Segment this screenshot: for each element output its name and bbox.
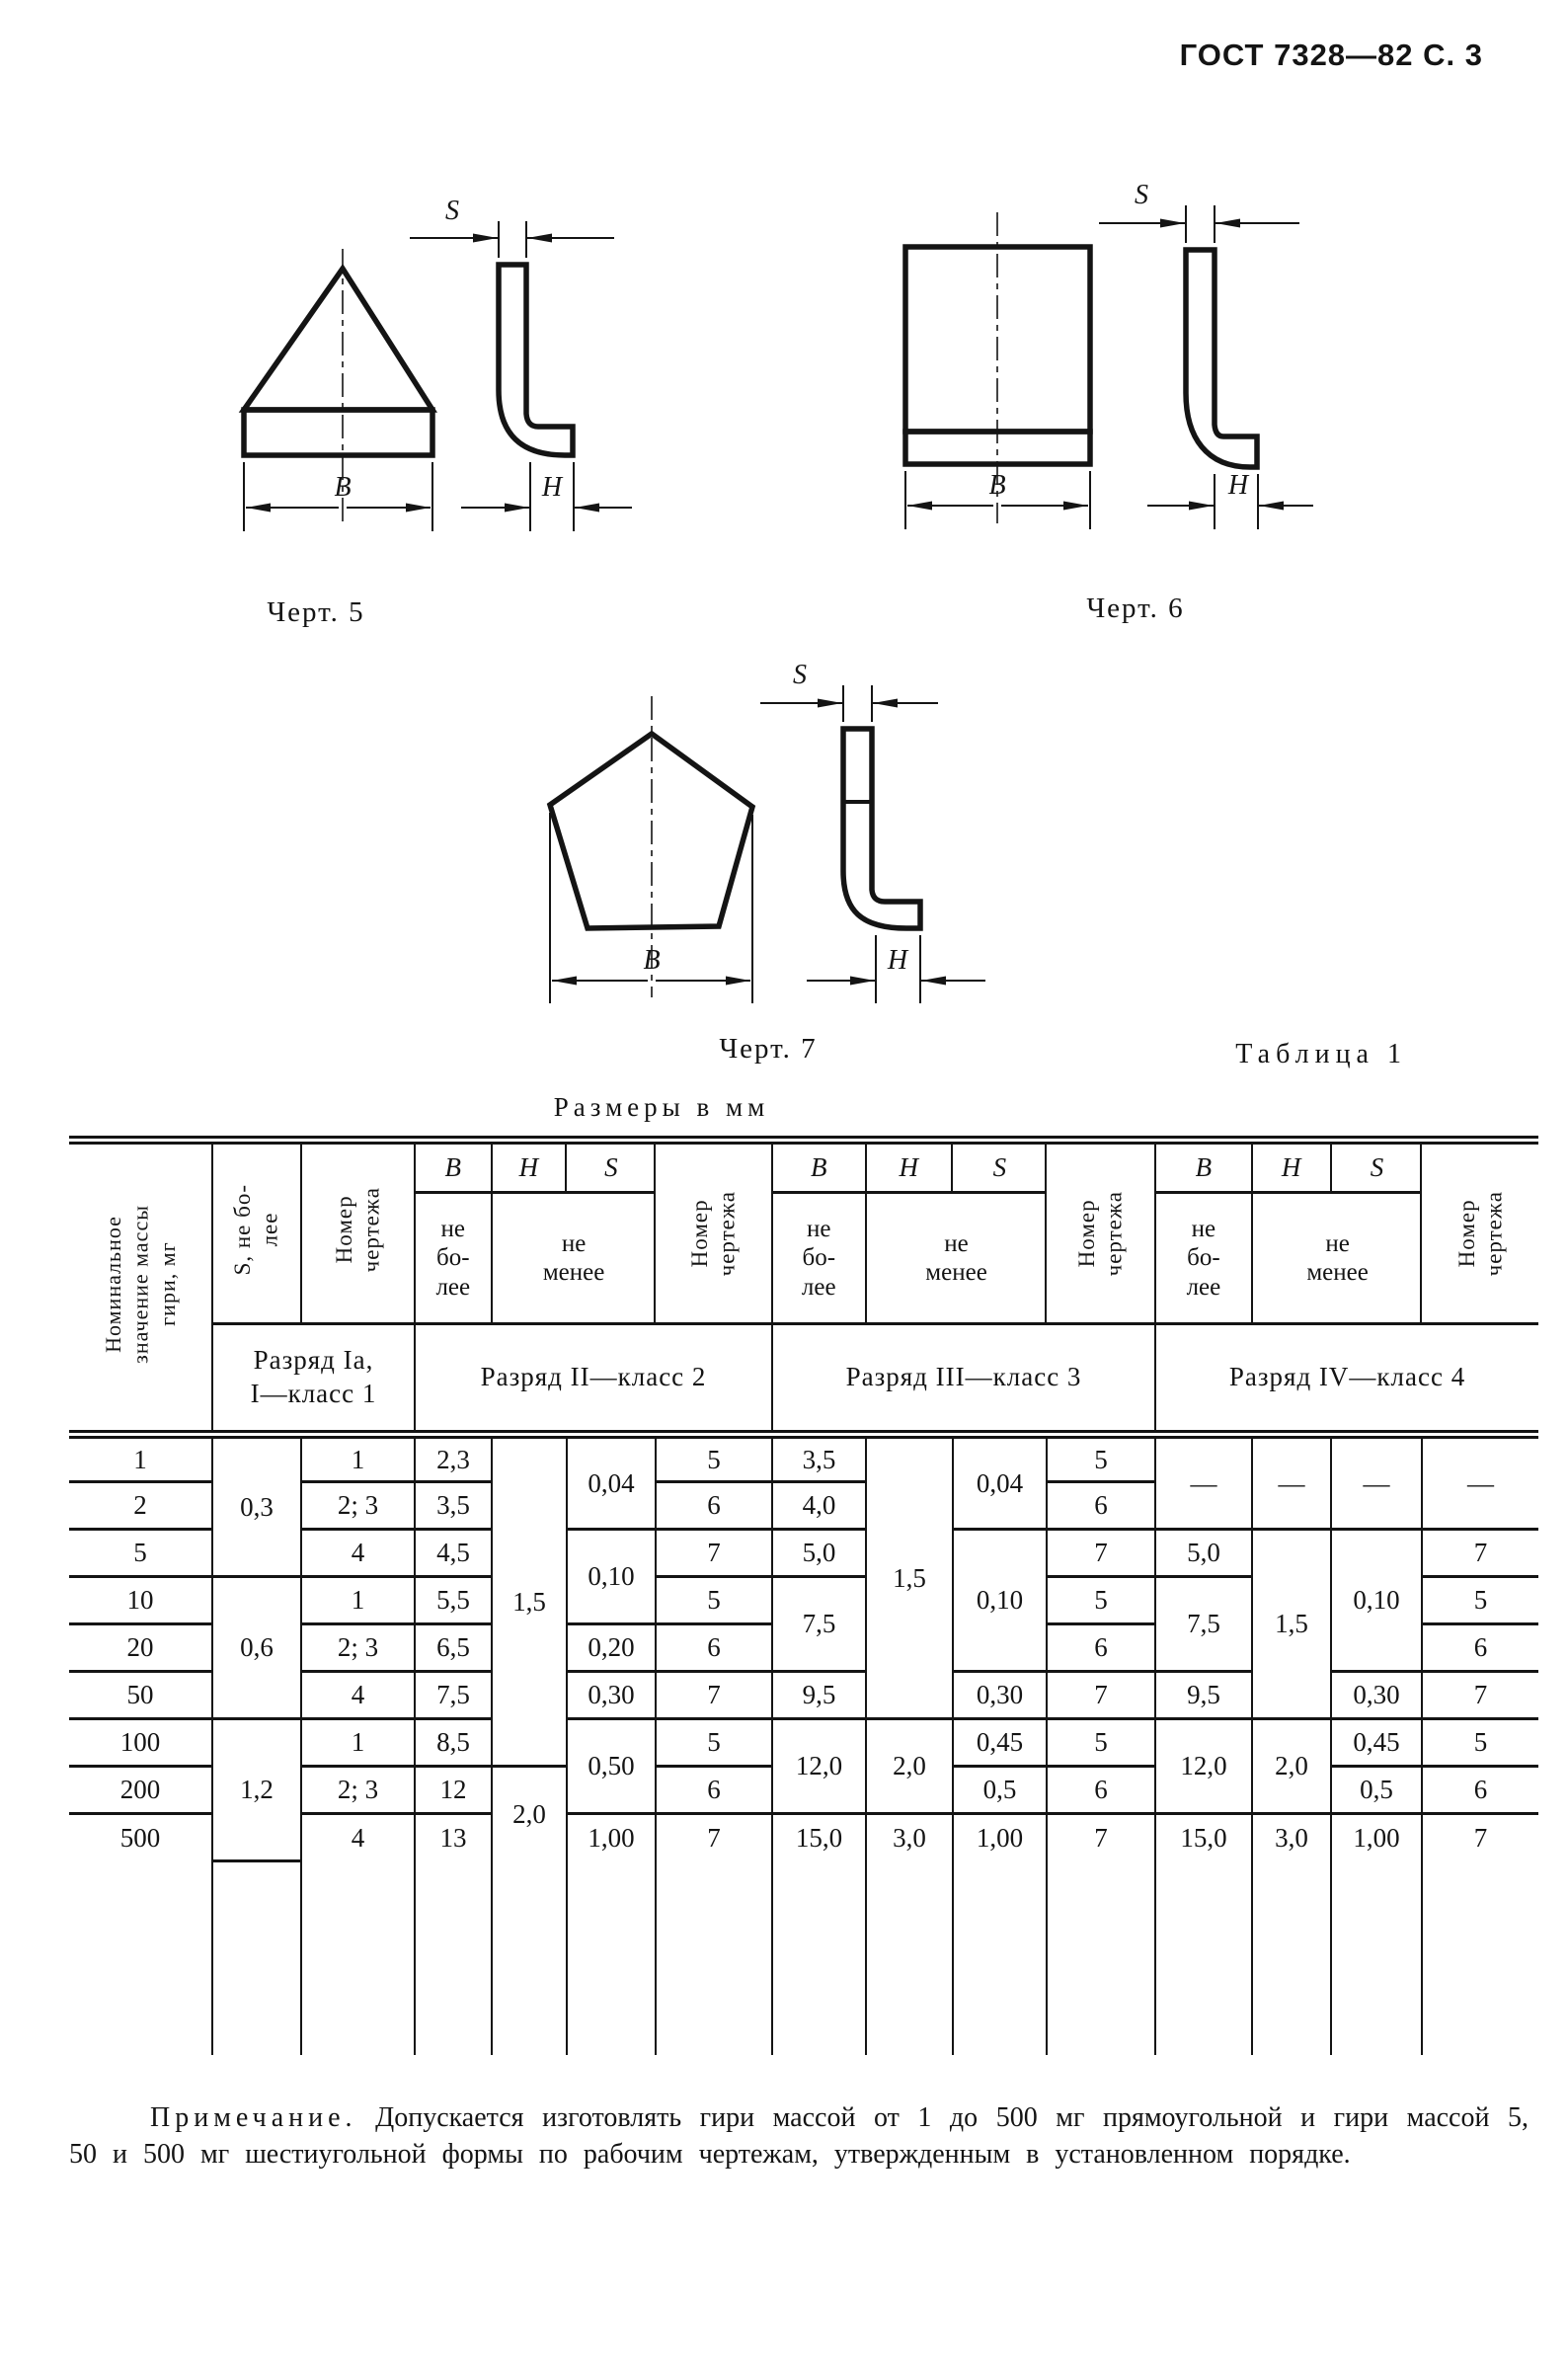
col-header-s: S (1332, 1145, 1423, 1194)
cell: 1,00 (1331, 1814, 1422, 1861)
cell: — (1422, 1435, 1538, 1530)
cell: 10 (69, 1577, 212, 1624)
cell: 2,0 (492, 1767, 567, 1861)
cell: 3,0 (866, 1814, 953, 1861)
dim-label-h: H (541, 472, 564, 503)
cell: — (1155, 1435, 1252, 1530)
col-header-ne-menee: не менее (1253, 1194, 1423, 1322)
cell: 50 (69, 1672, 212, 1719)
cell: 5 (656, 1719, 772, 1767)
col-header-nomer: Номер чертежа (654, 1145, 771, 1322)
cell: 8,5 (415, 1719, 492, 1767)
cell: 12,0 (772, 1719, 866, 1814)
col-header-nomer: Номер чертежа (1045, 1145, 1154, 1322)
cell: 6 (1422, 1767, 1538, 1814)
col-header-s: S (567, 1145, 656, 1194)
cell: 6 (1422, 1624, 1538, 1672)
cell: 0,3 (212, 1435, 301, 1577)
cell: 5,0 (772, 1530, 866, 1577)
cell: 3,0 (1252, 1814, 1331, 1861)
cell: 7 (1047, 1530, 1155, 1577)
cell: 2; 3 (301, 1624, 415, 1672)
cell: 2,0 (866, 1719, 953, 1814)
cell: 6 (1047, 1767, 1155, 1814)
cell: 5 (1422, 1719, 1538, 1767)
cell: 7 (656, 1814, 772, 1861)
col-header-ne-menee: не менее (493, 1194, 656, 1322)
cell: 0,20 (567, 1624, 656, 1672)
col-header-b: B (416, 1145, 493, 1194)
cell: 3,5 (772, 1435, 866, 1482)
side-view (843, 729, 920, 928)
cell: 15,0 (772, 1814, 866, 1861)
group-header-razryad3: B H S Номер чертежа не бо- лее не менее (772, 1141, 1155, 1324)
cell: 7 (1422, 1672, 1538, 1719)
cell: 1,5 (1252, 1530, 1331, 1719)
cell: 100 (69, 1719, 212, 1767)
col-header-mass: Номинальное значение массы гири, мг (69, 1141, 212, 1435)
cell: 7,5 (772, 1577, 866, 1672)
cell: 7 (1047, 1672, 1155, 1719)
cell: 5 (656, 1435, 772, 1482)
col-header-s-razryad1: S, не бо- лее (212, 1141, 301, 1324)
triangle-front-view (244, 269, 432, 410)
group-header-razryad2: B H S Номер чертежа не бо- лее не менее (415, 1141, 772, 1324)
cell: 6 (1047, 1624, 1155, 1672)
dim-label-s: S (793, 660, 807, 690)
cell: 4 (301, 1672, 415, 1719)
figure-5-caption: Черт. 5 (207, 596, 425, 629)
col-header-ne-bolee: не бо- лее (416, 1194, 493, 1322)
razryad3-label: Разряд III—класс 3 (772, 1324, 1155, 1435)
cell: 4,0 (772, 1482, 866, 1530)
cell: 5,0 (1155, 1530, 1252, 1577)
cell: 6 (656, 1482, 772, 1530)
col-header-h: H (867, 1145, 954, 1194)
side-view (499, 265, 573, 455)
cell: 500 (69, 1814, 212, 1861)
col-header-b: B (773, 1145, 867, 1194)
col-header-nomer: Номер чертежа (1420, 1145, 1538, 1322)
document-page: ГОСТ 7328—82 С. 3 B S H Черт. 5 (0, 0, 1568, 2372)
units-note: Размеры в мм (439, 1092, 884, 1123)
cell: 0,04 (567, 1435, 656, 1530)
cell: 1,2 (212, 1719, 301, 1861)
cell: 0,10 (1331, 1530, 1422, 1672)
col-header-b: B (1156, 1145, 1253, 1194)
cell: 9,5 (1155, 1672, 1252, 1719)
doc-reference: ГОСТ 7328—82 С. 3 (1180, 38, 1483, 73)
table-tail-rules (69, 1861, 1538, 2056)
dim-label-s: S (445, 196, 459, 226)
base-strip (244, 410, 432, 455)
note-paragraph: Примечание. Допускается изготовлять гири… (69, 2099, 1529, 2173)
cell: 0,30 (567, 1672, 656, 1719)
dim-label-h: H (1227, 470, 1250, 501)
note-label: Примечание. (150, 2102, 357, 2133)
col-header-ne-bolee: не бо- лее (773, 1194, 867, 1322)
dim-label-b: B (643, 945, 660, 976)
figure-5-drawing: B S H (148, 138, 632, 543)
cell: 4 (301, 1814, 415, 1861)
cell: 0,5 (953, 1767, 1047, 1814)
cell: 0,5 (1331, 1767, 1422, 1814)
cell: 13 (415, 1814, 492, 1861)
col-header-ne-bolee: не бо- лее (1156, 1194, 1253, 1322)
cell: 5 (69, 1530, 212, 1577)
cell: 5 (1047, 1719, 1155, 1767)
cell: 1,00 (953, 1814, 1047, 1861)
col-header-h: H (1253, 1145, 1332, 1194)
razryad1-label: Разряд Iа, I—класс 1 (212, 1324, 415, 1435)
cell: 6 (1047, 1482, 1155, 1530)
cell: 5,5 (415, 1577, 492, 1624)
cell: 2 (69, 1482, 212, 1530)
group-header-razryad4: B H S Номер чертежа не бо- лее не менее (1155, 1141, 1538, 1324)
cell: 5 (1422, 1577, 1538, 1624)
dimensions-table: Номинальное значение массы гири, мг S, н… (69, 1136, 1538, 2055)
dim-label-b: B (988, 470, 1005, 501)
figure-7-drawing: B S H (474, 612, 1012, 1017)
table-label: Таблица 1 (1235, 1039, 1407, 1070)
cell: 6,5 (415, 1624, 492, 1672)
cell: 1 (301, 1435, 415, 1482)
cell: 2; 3 (301, 1767, 415, 1814)
cell: 6 (656, 1624, 772, 1672)
cell: 7,5 (1155, 1577, 1252, 1672)
cell: 0,45 (1331, 1719, 1422, 1767)
cell: 12 (415, 1767, 492, 1814)
cell: 5 (1047, 1577, 1155, 1624)
side-view (1186, 250, 1257, 467)
cell: 7 (1047, 1814, 1155, 1861)
cell: 0,10 (567, 1530, 656, 1624)
cell: 1,00 (567, 1814, 656, 1861)
dim-label-h: H (887, 945, 909, 976)
cell: — (1252, 1435, 1331, 1530)
cell: 4 (301, 1530, 415, 1577)
col-header-nomer-razryad1: Номер чертежа (301, 1141, 415, 1324)
cell: 1,5 (492, 1435, 567, 1767)
cell: 0,10 (953, 1530, 1047, 1672)
cell: 5 (656, 1577, 772, 1624)
cell: 2,3 (415, 1435, 492, 1482)
cell: 9,5 (772, 1672, 866, 1719)
cell: 0,50 (567, 1719, 656, 1814)
cell: 200 (69, 1767, 212, 1814)
figure-6-caption: Черт. 6 (1027, 593, 1244, 625)
cell: 2,0 (1252, 1719, 1331, 1814)
cell: 15,0 (1155, 1814, 1252, 1861)
cell: 0,30 (953, 1672, 1047, 1719)
cell: 5 (1047, 1435, 1155, 1482)
col-header-s: S (953, 1145, 1047, 1194)
cell: 2; 3 (301, 1482, 415, 1530)
razryad2-label: Разряд II—класс 2 (415, 1324, 772, 1435)
cell: 7 (1422, 1814, 1538, 1861)
cell: 20 (69, 1624, 212, 1672)
cell: 1 (301, 1577, 415, 1624)
cell: 7 (1422, 1530, 1538, 1577)
cell: 7 (656, 1672, 772, 1719)
cell: 0,6 (212, 1577, 301, 1719)
dim-label-s: S (1135, 180, 1148, 210)
cell: 6 (656, 1767, 772, 1814)
cell: 1 (301, 1719, 415, 1767)
cell: 1,5 (866, 1435, 953, 1719)
col-header-h: H (493, 1145, 568, 1194)
cell: 4,5 (415, 1530, 492, 1577)
figure-7-caption: Черт. 7 (660, 1033, 877, 1066)
razryad4-label: Разряд IV—класс 4 (1155, 1324, 1538, 1435)
cell: 7 (656, 1530, 772, 1577)
figure-6-drawing: B S H (849, 138, 1313, 543)
cell: 0,30 (1331, 1672, 1422, 1719)
cell: 0,45 (953, 1719, 1047, 1767)
cell: — (1331, 1435, 1422, 1530)
cell: 7,5 (415, 1672, 492, 1719)
dim-label-b: B (334, 472, 351, 503)
cell: 1 (69, 1435, 212, 1482)
cell: 0,04 (953, 1435, 1047, 1530)
cell: 3,5 (415, 1482, 492, 1530)
cell: 12,0 (1155, 1719, 1252, 1814)
col-header-ne-menee: не менее (867, 1194, 1047, 1322)
